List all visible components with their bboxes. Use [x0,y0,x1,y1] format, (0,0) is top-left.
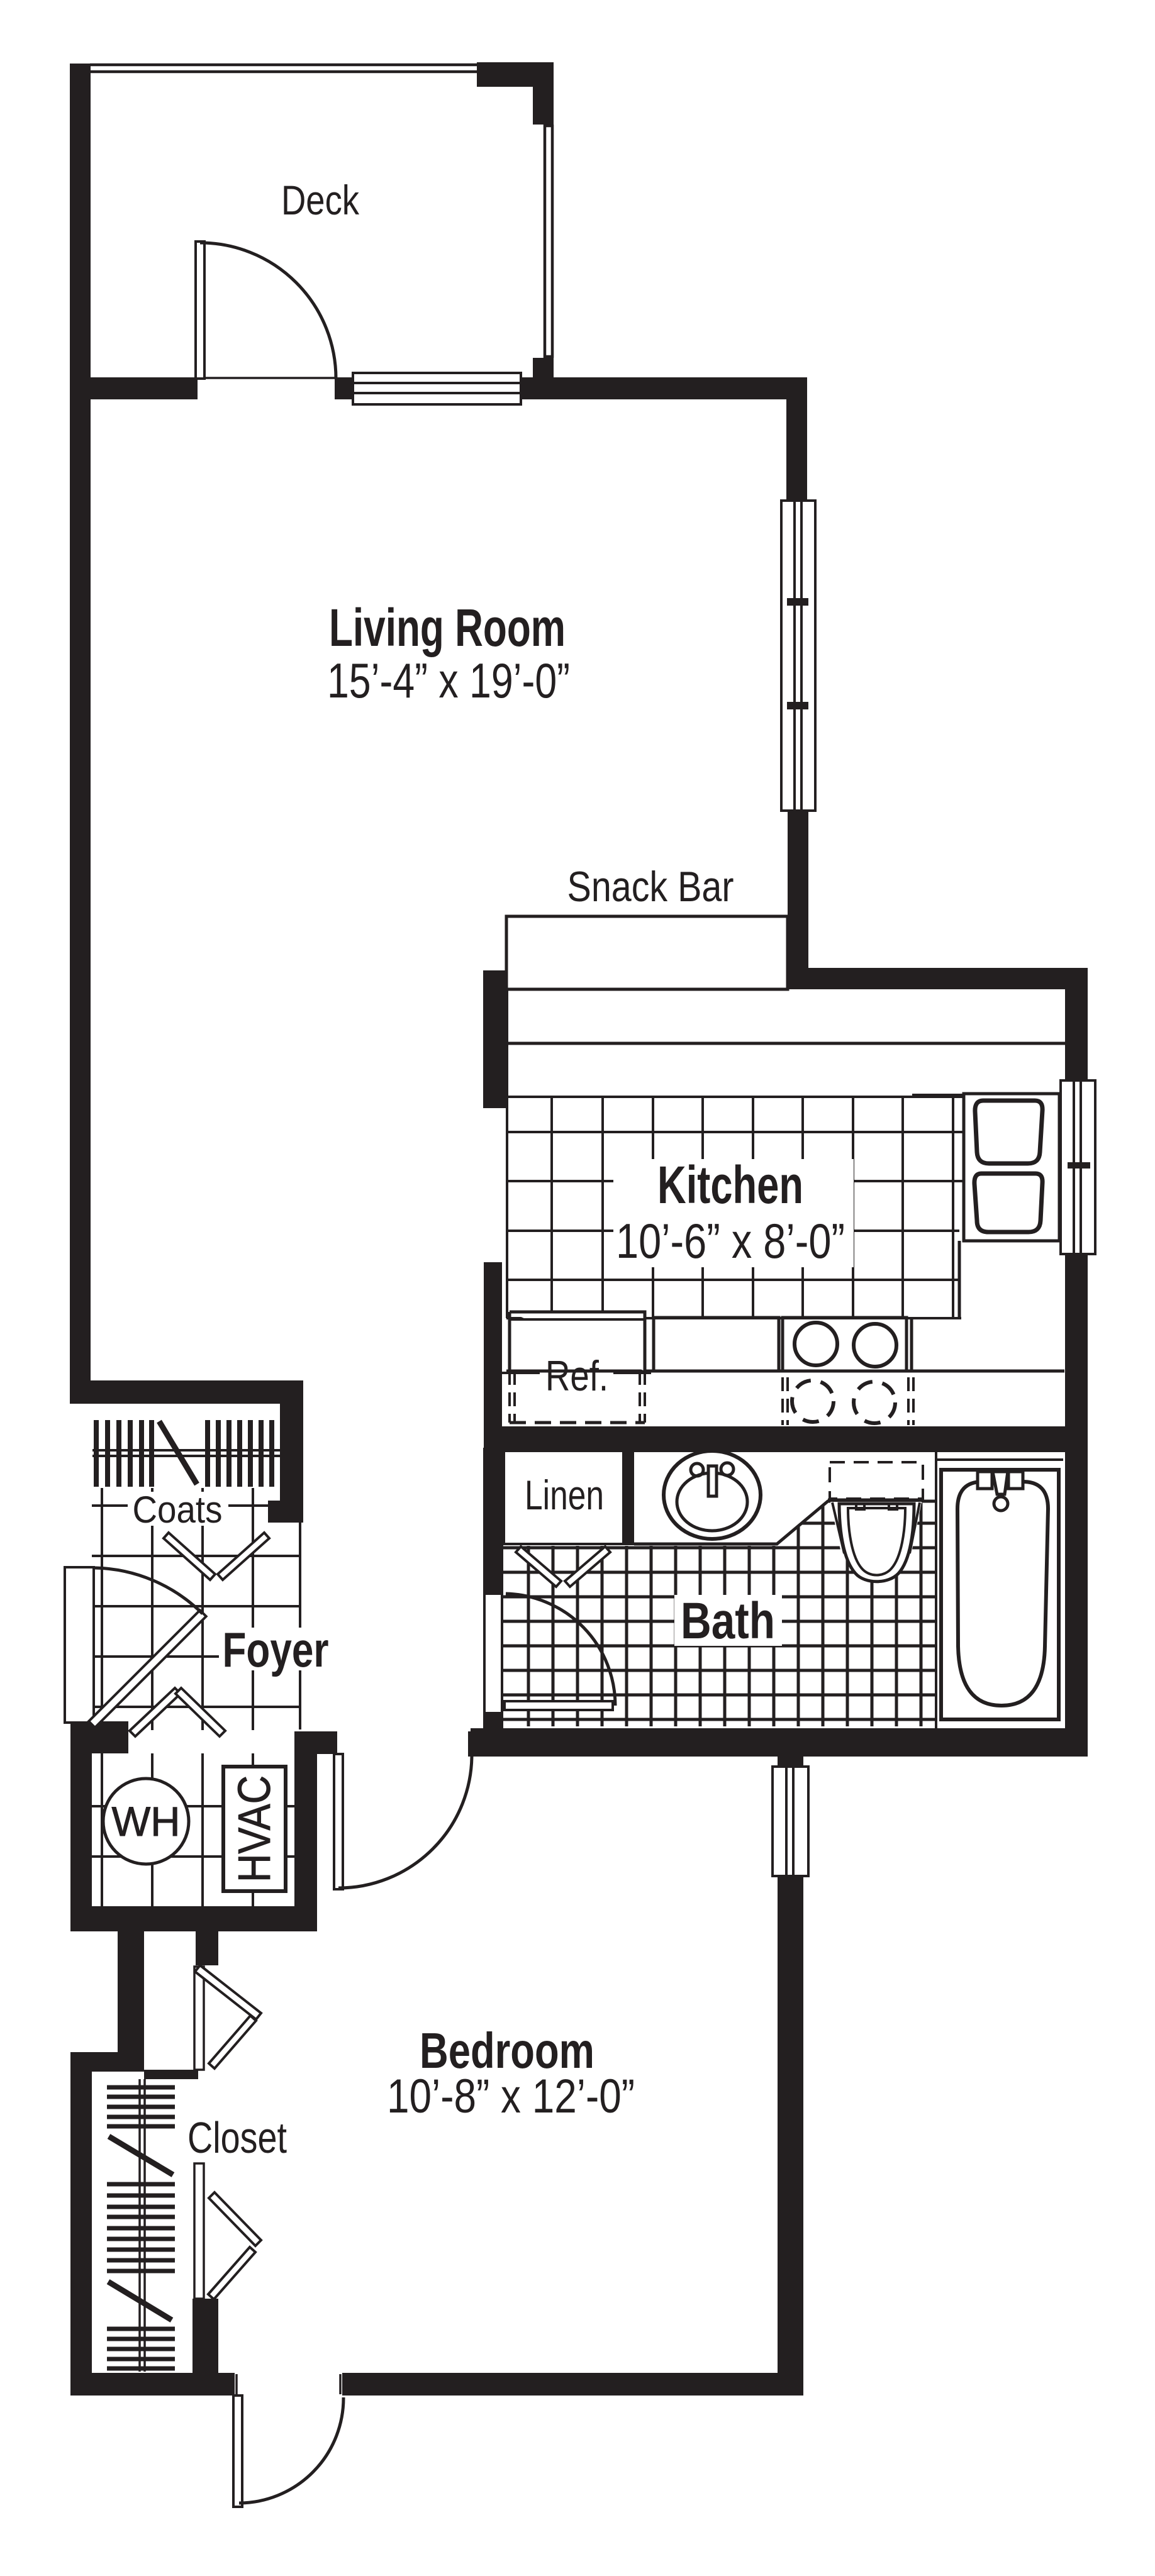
svg-text:Foyer: Foyer [223,1622,329,1677]
svg-text:Bath: Bath [681,1592,775,1650]
svg-text:Closet: Closet [187,2113,287,2162]
svg-text:WH: WH [112,1798,181,1845]
svg-text:Snack Bar: Snack Bar [567,863,734,911]
svg-text:Ref.: Ref. [545,1352,608,1400]
svg-text:15’-4” x 19’-0”: 15’-4” x 19’-0” [327,653,570,708]
svg-text:Kitchen: Kitchen [657,1155,803,1214]
svg-text:Coats: Coats [133,1489,223,1531]
svg-text:10’-8” x 12’-0”: 10’-8” x 12’-0” [387,2070,635,2123]
svg-text:HVAC: HVAC [230,1775,280,1882]
svg-text:Deck: Deck [281,177,360,223]
svg-text:10’-6” x 8’-0”: 10’-6” x 8’-0” [616,1213,845,1269]
svg-text:Linen: Linen [525,1472,604,1518]
svg-text:Living Room: Living Room [329,598,566,657]
